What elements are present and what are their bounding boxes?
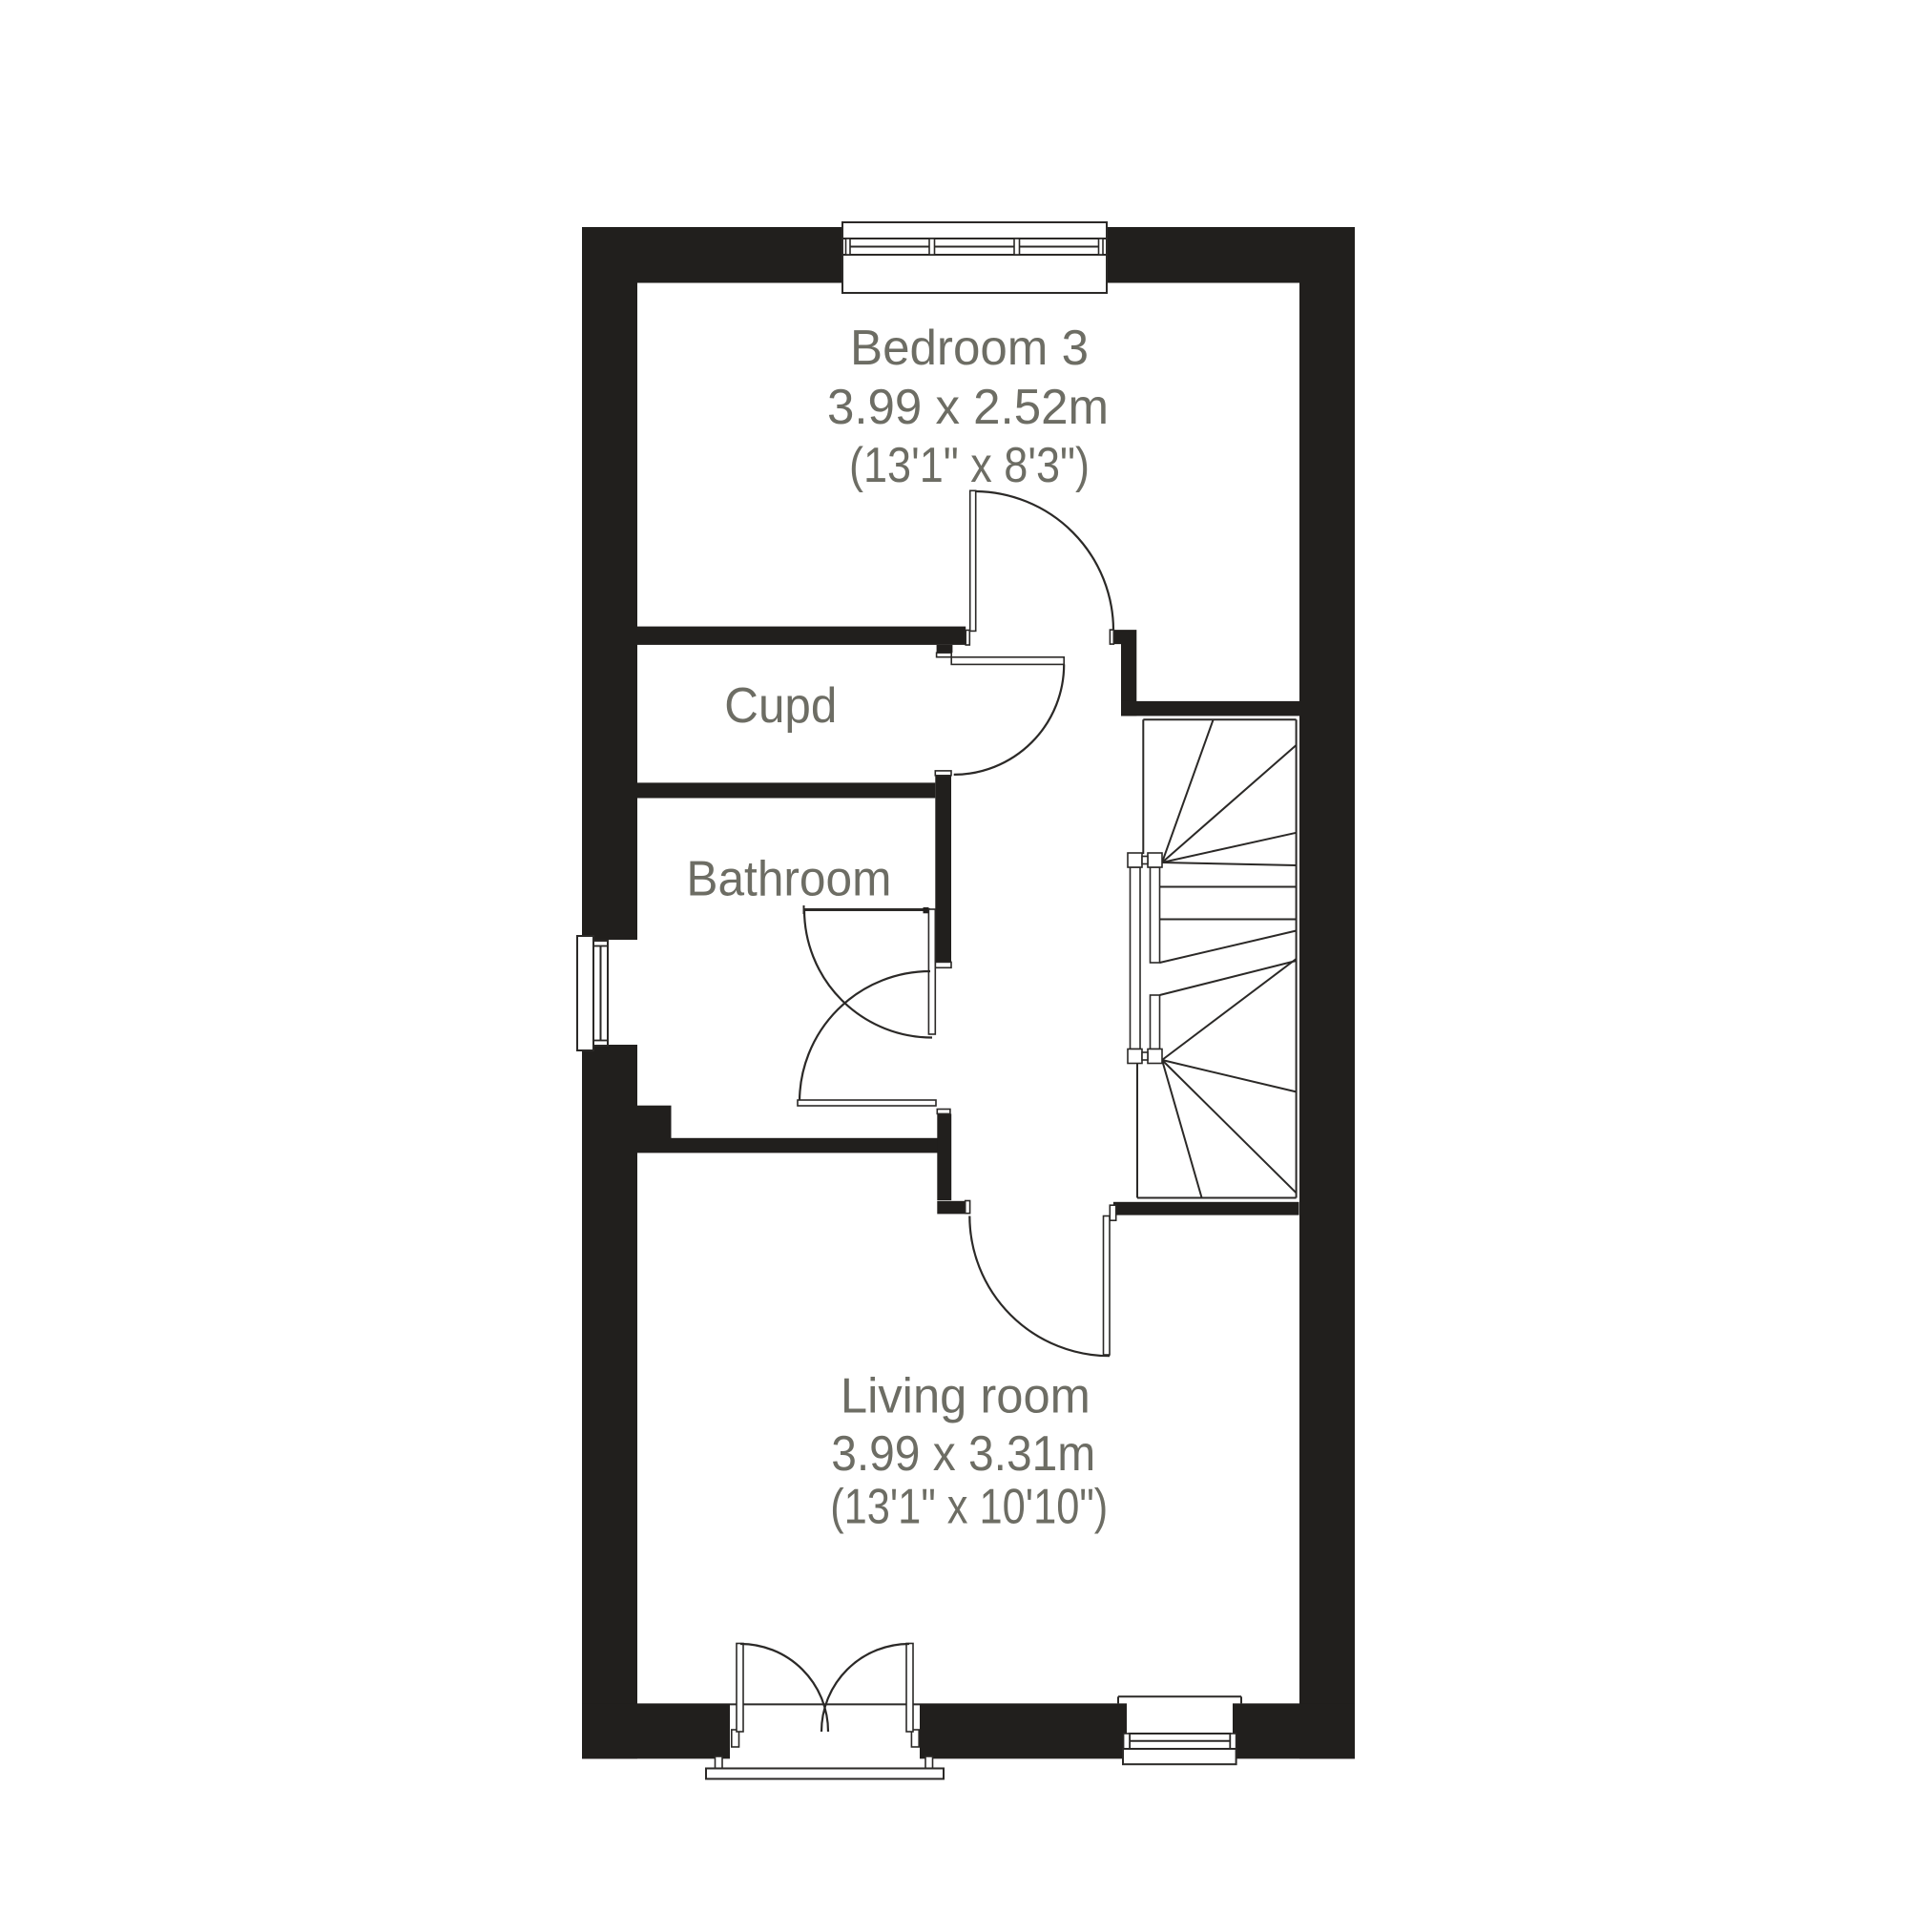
svg-text:Bathroom: Bathroom	[686, 852, 891, 907]
svg-text:Living room: Living room	[841, 1368, 1091, 1423]
svg-text:(13'1" x 8'3"): (13'1" x 8'3")	[849, 438, 1090, 493]
svg-text:Bedroom 3: Bedroom 3	[850, 321, 1089, 376]
svg-text:(13'1" x 10'10"): (13'1" x 10'10")	[830, 1480, 1108, 1535]
svg-text:3.99 x 2.52m: 3.99 x 2.52m	[827, 380, 1109, 435]
svg-text:Cupd: Cupd	[724, 678, 837, 734]
svg-text:3.99 x 3.31m: 3.99 x 3.31m	[831, 1426, 1095, 1482]
